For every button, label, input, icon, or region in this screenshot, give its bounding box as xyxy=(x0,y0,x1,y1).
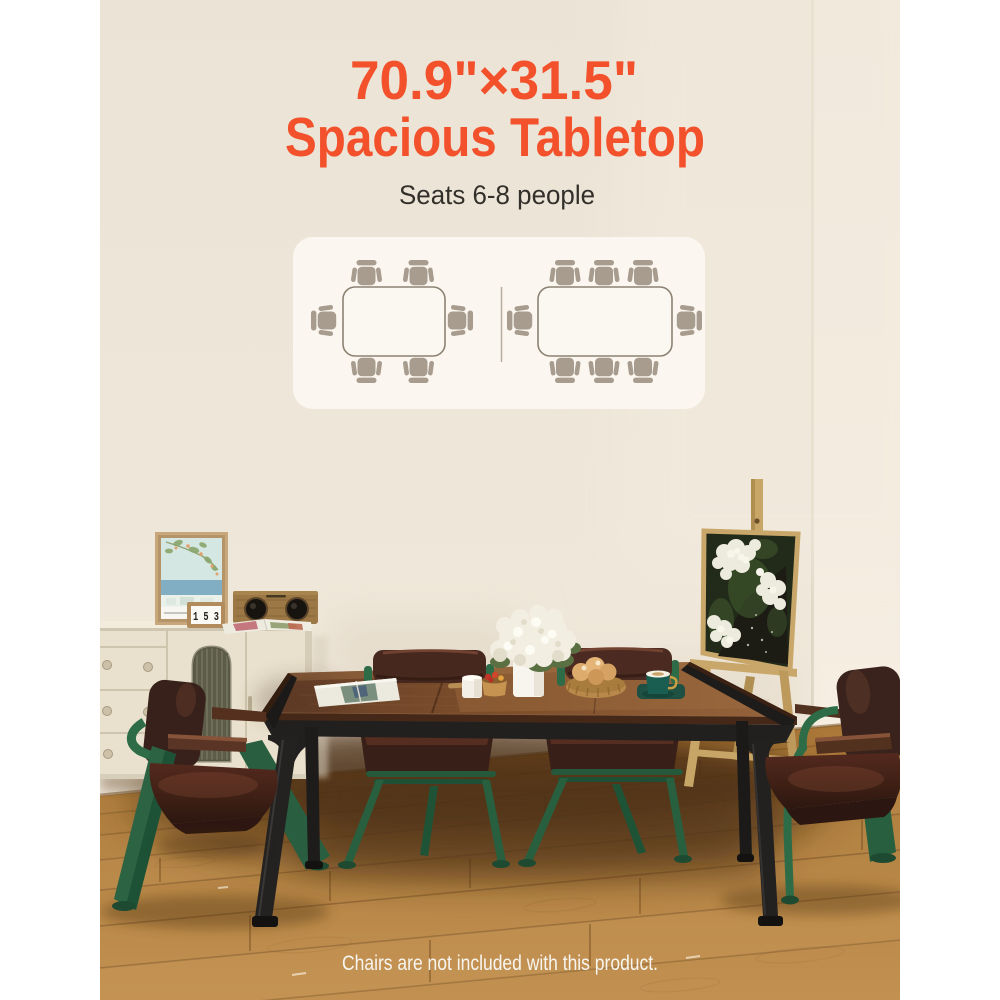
svg-text:Spacious Tabletop: Spacious Tabletop xyxy=(285,106,705,168)
svg-text:Chairs are not included with t: Chairs are not included with this produc… xyxy=(342,952,658,975)
svg-text:1 5 3: 1 5 3 xyxy=(193,610,219,624)
svg-text:Seats 6-8 people: Seats 6-8 people xyxy=(399,180,595,210)
svg-text:70.9"×31.5": 70.9"×31.5" xyxy=(350,49,638,111)
